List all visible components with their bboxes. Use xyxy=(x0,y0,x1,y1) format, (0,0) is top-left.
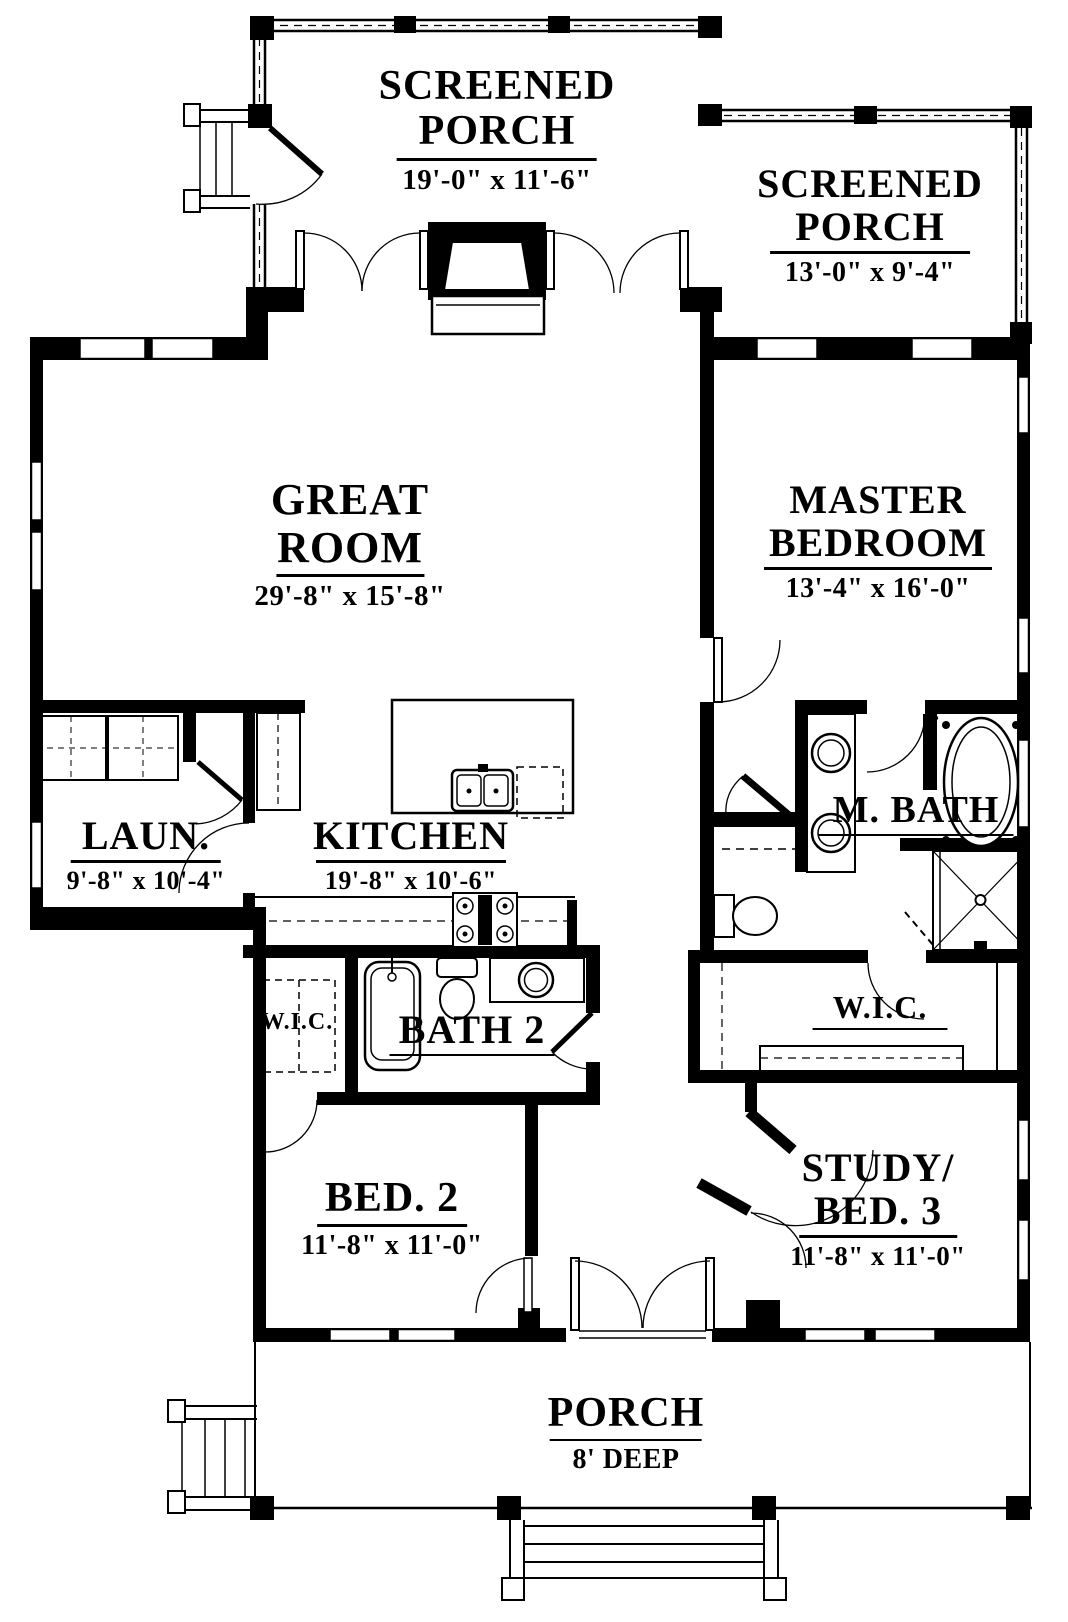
room-dims: 8' DEEP xyxy=(548,1445,705,1475)
porch-steps-left xyxy=(168,1400,257,1513)
label-underline xyxy=(813,1028,948,1030)
room-label-master-bedroom: MASTER BEDROOM 13'-4" x 16'-0" xyxy=(764,478,992,605)
room-label-study-bed-3: STUDY/ BED. 3 11'-8" x 11'-0" xyxy=(790,1146,966,1272)
shower-door xyxy=(905,912,933,945)
label-underline xyxy=(799,1235,957,1238)
room-label-kitchen: KITCHEN 19'-8" x 10'-6" xyxy=(313,814,509,895)
room-dims: 11'-8" x 11'-0" xyxy=(301,1231,483,1261)
room-name: BED. 2 xyxy=(301,1176,483,1221)
room-name: W.I.C. xyxy=(261,1010,333,1036)
hearth xyxy=(432,296,544,334)
room-label-bath-2: BATH 2 xyxy=(390,1008,555,1060)
master-toilet xyxy=(714,895,777,937)
label-underline xyxy=(276,574,424,577)
room-name: ROOM xyxy=(254,524,445,572)
label-underline xyxy=(390,1054,555,1056)
bath2-door xyxy=(552,1013,592,1069)
room-label-wic-right: W.I.C. xyxy=(813,990,948,1034)
label-underline xyxy=(770,251,970,254)
room-name: KITCHEN xyxy=(313,814,509,857)
fireplace xyxy=(428,222,546,334)
master-shower xyxy=(905,851,1028,950)
room-label-bed-2: BED. 2 11'-8" x 11'-0" xyxy=(301,1176,483,1262)
faucet xyxy=(478,764,488,772)
room-name: PORCH xyxy=(548,1391,705,1436)
bed2-door xyxy=(476,1258,532,1313)
label-underline xyxy=(819,834,1014,836)
room-label-porch: PORCH 8' DEEP xyxy=(548,1391,705,1476)
porch-french-doors xyxy=(571,1258,714,1330)
room-name: LAUN. xyxy=(67,814,226,857)
floor-plan-page: SCREENED PORCH 19'-0" x 11'-6" SCREENED … xyxy=(0,0,1068,1622)
label-underline xyxy=(316,860,506,863)
room-label-screened-porch-left: SCREENED PORCH 19'-0" x 11'-6" xyxy=(379,64,616,196)
room-name: BEDROOM xyxy=(764,521,992,564)
room-name: STUDY/ xyxy=(790,1146,966,1189)
label-underline xyxy=(397,158,597,161)
room-label-master-bath: M. BATH xyxy=(819,790,1014,840)
porch-steps-top-left xyxy=(184,104,250,212)
room-label-laundry: LAUN. 9'-8" x 10'-4" xyxy=(67,814,226,895)
pantry-cabinet xyxy=(257,713,300,810)
room-name: MASTER xyxy=(764,478,992,521)
room-name: GREAT xyxy=(254,476,445,524)
master-bath-door-arc xyxy=(867,714,925,772)
room-name: BATH 2 xyxy=(390,1008,555,1051)
room-label-wic-left: W.I.C. xyxy=(261,1010,333,1036)
room-name: M. BATH xyxy=(819,790,1014,831)
room-name: SCREENED xyxy=(757,162,983,205)
room-dims: 19'-0" x 11'-6" xyxy=(379,165,616,196)
label-underline xyxy=(550,1439,702,1441)
room-dims: 13'-4" x 16'-0" xyxy=(764,574,992,604)
kitchen-sink xyxy=(452,764,513,811)
room-label-great-room: GREAT ROOM 29'-8" x 15'-8" xyxy=(254,476,445,612)
label-underline xyxy=(71,860,221,863)
screen-door xyxy=(256,128,322,204)
chamfer-walls xyxy=(699,1112,793,1211)
room-dims: 19'-8" x 10'-6" xyxy=(313,867,509,895)
room-dims: 29'-8" x 15'-8" xyxy=(254,581,445,612)
label-underline xyxy=(317,1224,467,1227)
room-dims: 13'-0" x 9'-4" xyxy=(757,258,983,288)
master-bedroom-door xyxy=(714,638,780,702)
room-name: BED. 3 xyxy=(790,1189,966,1232)
bath2-vanity xyxy=(490,958,584,1002)
room-label-screened-porch-right: SCREENED PORCH 13'-0" x 9'-4" xyxy=(757,162,983,289)
label-underline xyxy=(764,567,992,570)
shower-head xyxy=(974,941,987,950)
wic-left-door-arc xyxy=(265,1100,317,1152)
porch-steps-bottom xyxy=(502,1520,786,1600)
laundry-cabinets xyxy=(36,716,178,780)
room-name: SCREENED xyxy=(379,64,616,109)
room-name: PORCH xyxy=(379,109,616,154)
room-name: W.I.C. xyxy=(813,990,948,1025)
room-name: PORCH xyxy=(757,205,983,248)
room-dims: 9'-8" x 10'-4" xyxy=(67,867,226,895)
kitchen-counter xyxy=(255,897,575,921)
range-stove xyxy=(453,893,517,947)
room-dims: 11'-8" x 11'-0" xyxy=(790,1242,966,1271)
